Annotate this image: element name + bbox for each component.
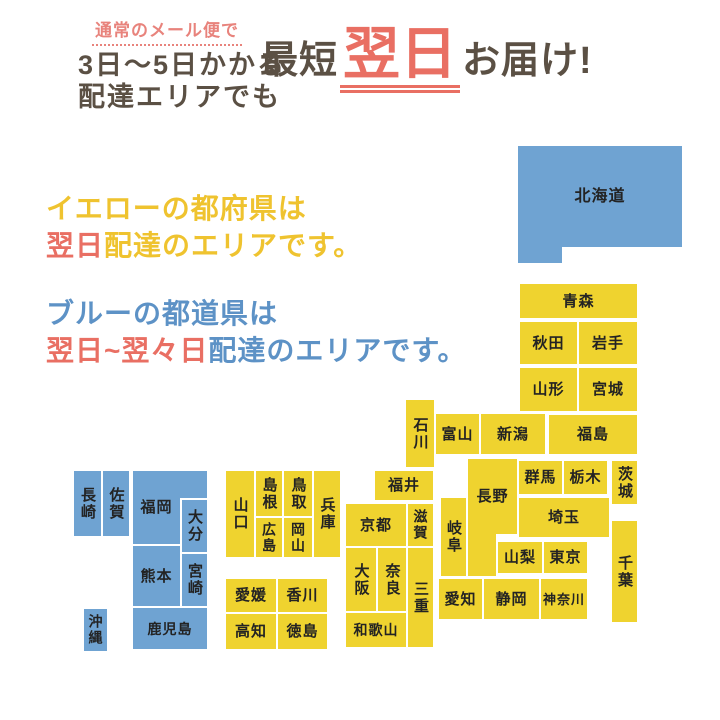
prefecture-kumamoto: 熊本 (133, 546, 180, 606)
prefecture-nagano: 長野 (468, 459, 517, 534)
prefecture-hiroshima: 広島 (256, 518, 282, 557)
delivery-area-infographic: 通常のメール便で 3日〜5日かかる 配達エリアでも 最短 翌日 お届け! イエロ… (0, 0, 720, 720)
prefecture-kagoshima: 鹿児島 (133, 608, 207, 649)
prefecture-saitama: 埼玉 (519, 498, 609, 537)
prefecture-nagasaki: 長崎 (74, 471, 101, 536)
prefecture-kagawa: 香川 (278, 579, 327, 612)
prefecture-shiga: 滋賀 (408, 504, 433, 546)
prefecture-shizuoka: 静岡 (484, 579, 539, 619)
prefecture-ehime: 愛媛 (226, 579, 276, 612)
prefecture-shimane: 島根 (256, 471, 282, 516)
prefecture-toyama: 富山 (436, 414, 479, 454)
prefecture-hokkaido: 北海道 (518, 146, 682, 247)
prefecture-fukui: 福井 (375, 471, 433, 500)
prefecture-nara: 奈良 (378, 548, 406, 611)
prefecture-iwate: 岩手 (579, 322, 637, 364)
prefecture-tottori: 鳥取 (284, 471, 312, 516)
prefecture-kyoto: 京都 (346, 504, 406, 546)
prefecture-tokyo: 東京 (544, 542, 587, 573)
prefecture-osaka: 大阪 (346, 548, 376, 611)
prefecture-aichi: 愛知 (439, 579, 482, 619)
prefecture-oita: 大分 (182, 500, 207, 552)
prefecture-fukushima: 福島 (549, 415, 637, 454)
prefecture-hokkaido-leg-extension (518, 240, 562, 263)
prefecture-gunma: 群馬 (519, 461, 562, 494)
prefecture-wakayama: 和歌山 (346, 613, 406, 647)
prefecture-tokushima: 徳島 (278, 614, 327, 649)
prefecture-fukuoka: 福岡 (133, 471, 180, 544)
prefecture-kochi: 高知 (226, 614, 276, 649)
prefecture-saga: 佐賀 (103, 471, 129, 536)
prefecture-ishikawa: 石川 (406, 400, 434, 467)
prefecture-akita: 秋田 (520, 322, 577, 364)
prefecture-ibaraki: 茨城 (612, 461, 637, 504)
prefecture-okinawa: 沖縄 (84, 609, 107, 651)
prefecture-yamanashi: 山梨 (498, 542, 542, 573)
prefecture-mie: 三重 (408, 548, 433, 647)
prefecture-hyogo: 兵庫 (314, 471, 340, 557)
prefecture-fukuoka-ne-extension (178, 471, 207, 498)
japan-block-map: 北海道青森秋田岩手山形宮城福島新潟富山石川福井群馬栃木茨城長野埼玉岐阜山梨東京千… (0, 0, 720, 720)
prefecture-yamagata: 山形 (520, 368, 577, 411)
prefecture-kanagawa: 神奈川 (541, 579, 587, 619)
prefecture-aomori: 青森 (520, 284, 637, 318)
prefecture-tochigi: 栃木 (564, 461, 607, 494)
prefecture-gifu: 岐阜 (441, 498, 466, 576)
prefecture-okayama: 岡山 (284, 518, 312, 557)
prefecture-miyazaki: 宮崎 (182, 554, 207, 606)
prefecture-miyagi: 宮城 (579, 368, 637, 411)
prefecture-yamaguchi: 山口 (226, 471, 254, 557)
prefecture-niigata: 新潟 (481, 414, 545, 454)
prefecture-chiba: 千葉 (612, 521, 637, 622)
prefecture-nagano-south-extension (468, 531, 496, 576)
